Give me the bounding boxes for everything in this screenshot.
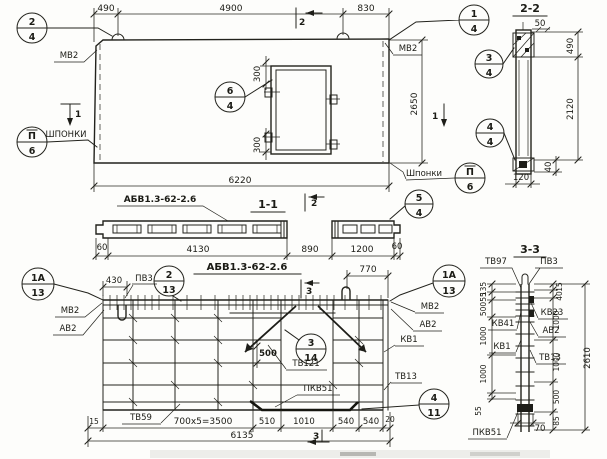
pv3-leader [529,268,563,284]
callout-bottom: 4 [471,24,478,35]
label-tv121: ТВ121 [291,359,319,369]
section-2-2: 2-2 50 490 2120 40 120 3 4 4 4 [475,2,583,188]
callout-top: 3 [308,338,315,349]
callout-bottom: 4 [486,68,493,79]
dim-2650: 2650 [410,92,420,115]
label-shponki-left: ШПОНКИ [46,130,87,140]
tv13-leader [384,382,422,390]
dim-500: 500 [552,390,561,405]
callout-1a-13-right: 1А 13 [390,265,465,301]
bottom-embed-bolt [519,161,527,168]
callout-1-4: 1 4 [389,5,489,40]
label-pkv51: ПКВ51 [472,428,501,438]
label-tv59: ТВ59 [129,413,152,423]
callout-bottom: 6 [29,146,36,157]
callout-1a-13-left: 1А 13 [22,268,103,300]
callout-bottom: 4 [29,32,36,43]
section-title: 2-2 [520,2,540,15]
label-av2-right: АВ2 [419,320,436,330]
dim-890: 890 [301,245,318,255]
mark-label: 3 [306,287,312,297]
callout-2-13: 2 13 [154,266,184,301]
dim-20: 20 [385,415,395,424]
dim-1200: 1200 [351,245,374,255]
elevation-title: АБВ1.3-62-2.6 [207,262,288,273]
section-title: 3-3 [520,243,540,256]
callout-top: 2 [166,270,173,281]
callout-2-4: 2 4 [17,13,112,43]
dim-500: 500 [479,302,488,317]
callout-top: П [466,167,474,178]
dim-120: 120 [513,173,529,183]
product-leader [117,206,228,221]
dim-540b: 540 [363,417,379,427]
dim-50: 50 [535,19,546,29]
section-mark-2-bottom: 2 [305,194,324,211]
chord-lines [103,300,388,410]
strip-voids-left [113,225,281,233]
label-mv2-left: МВ2 [61,306,80,316]
callout-p-6-right: П 6 [455,163,485,193]
strip-voids-right [335,221,392,238]
callout-bottom: 13 [31,288,44,299]
label-pv3: ПВ3 [540,257,558,267]
arrow-down-icon [441,119,447,127]
dim-15: 15 [555,282,564,292]
dim-3500: 700х5=3500 [174,417,233,427]
dim-4900: 4900 [220,4,243,14]
kv1-leader [384,345,424,352]
label-kv23: КВ23 [541,308,564,318]
scan-mark [340,452,376,456]
label-av2: АВ2 [542,326,559,336]
section-3-3: 3-3 ТВ97 ПВ3 135 55 500 1000 1000 55 15 … [468,243,593,439]
dim-6135: 6135 [231,431,254,441]
callout-bottom: 4 [416,208,423,219]
callout-top: 1А [31,273,46,284]
label-mv2-left: МВ2 [60,51,79,61]
label-mv2-right: МВ2 [421,302,440,312]
dim-85: 85 [552,416,561,426]
dim-40: 40 [544,162,554,173]
dim-6220: 6220 [229,176,252,186]
callout-top: 4 [431,393,438,404]
dim-540a: 540 [338,417,354,427]
dim-490: 490 [566,38,576,54]
dim-1000-b: 1000 [479,364,488,383]
label-pkv51: ПКВ51 [303,384,332,394]
callout-5-4: 5 4 [390,190,433,219]
callout-leader [475,48,514,64]
callout-top: 6 [227,86,234,97]
drawing-canvas: 490 4900 830 2650 6220 300 300 2 4 МВ2 1 [0,0,607,459]
section-mark-3-bottom: 3 [308,430,329,445]
callout-3-4: 3 4 [475,48,514,79]
scan-artifacts [150,450,550,458]
dim-70: 70 [535,424,546,434]
dim-60-right: 60 [392,242,403,252]
label-mv2-right: МВ2 [399,44,418,54]
pkv51-leader [275,395,340,407]
label-tv13: ТВ13 [538,353,561,363]
arrow-left-icon [305,280,313,286]
section-mark-3-top: 3 [301,280,319,298]
scan-mark [470,452,520,456]
strip-right-segment [332,221,400,238]
embed-plates [529,296,534,317]
dim-830: 830 [357,4,374,14]
dim-2610: 2610 [583,347,593,369]
dim-510: 510 [259,417,275,427]
member-inner [519,22,528,156]
callout-bottom: 4 [487,137,494,148]
callout-bottom: 6 [467,182,474,193]
plan-view: 490 4900 830 2650 6220 300 300 2 4 МВ2 1 [17,4,489,211]
chord-line2 [103,300,388,410]
dim-40: 40 [555,291,564,301]
label-shponki-right: Шпонки [406,169,442,179]
callout-4-4: 4 4 [476,119,515,160]
dim-55-top: 55 [479,292,488,302]
dim-770: 770 [359,265,376,275]
callout-leader [285,330,326,349]
mark-label: 2 [311,199,317,209]
label-av2-left: АВ2 [59,324,76,334]
callout-leader [390,204,433,219]
mark-label: 1 [75,110,81,120]
dim-1000-a: 1000 [479,326,488,345]
callout-leader [476,133,515,160]
drawing-sheet: 490 4900 830 2650 6220 300 300 2 4 МВ2 1 [0,0,607,459]
callout-bottom: 4 [227,101,234,112]
callout-leader [215,80,272,97]
label-kv41: КВ41 [492,319,515,329]
loop-at-door [342,287,350,300]
dim-4130: 4130 [187,245,210,255]
vertical-bars [103,300,383,410]
section-mark-1-left: 1 [61,104,81,126]
dim-2120: 2120 [566,98,576,120]
stirrup-ticks [103,295,381,310]
panel-hidden-lines [100,41,383,162]
dim-2650-lines [389,40,428,163]
arrow-down-icon [67,118,73,126]
label-tv97: ТВ97 [484,257,507,267]
top-embed-bolts [517,36,529,52]
callout-4-11: 4 11 [362,389,449,419]
panel-outline [94,39,389,163]
section-mark-1-right: 1 [432,104,447,127]
callout-bottom: 11 [427,408,440,419]
mark-label: 1 [432,112,438,122]
embed-ticks [264,92,340,144]
dim-300-bot: 300 [253,137,263,153]
arrow-left-icon [306,10,314,16]
callout-top: 1 [471,9,478,20]
dim-500: 500 [259,349,277,359]
elevation-view: АБВ1.3-62-2.6 430 ПВ3 770 500 3 [22,262,465,447]
left-jamb-lines [281,221,284,238]
dim-1010: 1010 [293,417,315,427]
mark-label: 3 [313,432,319,442]
callout-top: 4 [487,122,494,133]
callout-top: П [28,131,36,142]
callout-top: 3 [486,53,493,64]
door-frame [276,70,326,150]
mark-label: 2 [299,18,305,28]
dim-55-bottom: 55 [474,406,483,416]
callout-6-4: 6 4 [215,80,272,112]
label-kv1: КВ1 [493,342,510,352]
dim-430: 430 [106,276,122,286]
section-mark-2-top: 2 [296,8,322,28]
dim-15: 15 [89,417,99,426]
horizontal-bars [103,318,383,402]
label-tv13: ТВ13 [394,372,417,382]
callout-top: 2 [29,17,36,28]
base-plate [517,404,533,412]
callout-top: 5 [416,193,423,204]
strip-left-segment [96,221,287,238]
door-opening [271,66,331,154]
section-1-1: 1-1 АБВ1.3-62-2.6 60 4130 890 1200 60 5 … [93,190,433,260]
label-pv3: ПВ3 [135,274,153,284]
dim-490: 490 [97,4,114,14]
dim-300-top: 300 [253,66,263,82]
callout-bottom: 13 [442,286,455,297]
section-title: 1-1 [258,198,278,211]
dim-60-left: 60 [97,243,108,253]
callout-top: 1А [442,270,457,281]
top-loop [522,274,528,284]
callout-bottom: 13 [162,285,175,296]
label-product-code: АБВ1.3-62-2.6 [124,195,197,205]
label-kv1: КВ1 [400,335,417,345]
